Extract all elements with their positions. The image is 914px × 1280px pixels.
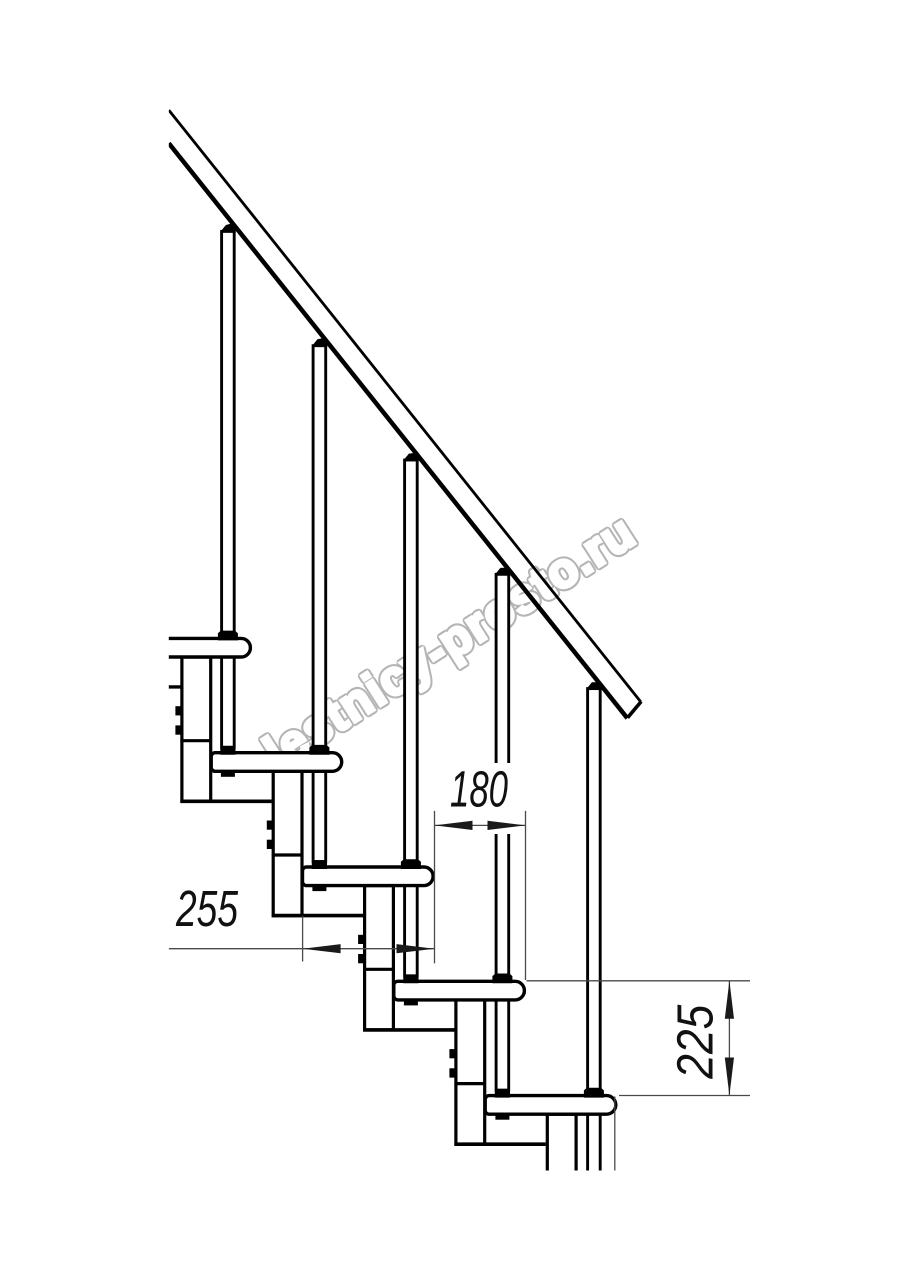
- svg-text:225: 225: [667, 1004, 724, 1079]
- svg-text:255: 255: [175, 880, 238, 937]
- svg-text:180: 180: [450, 760, 508, 817]
